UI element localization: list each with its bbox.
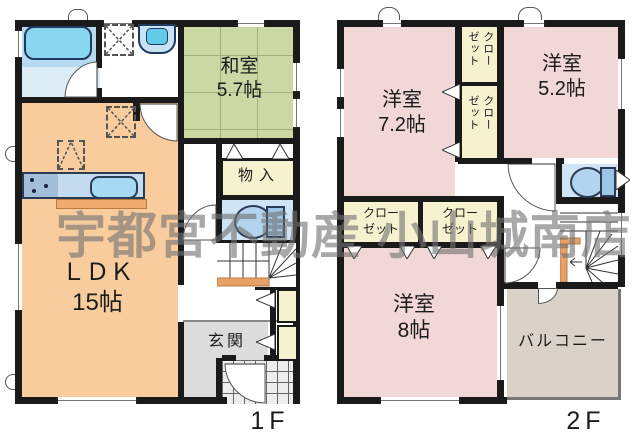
western52-name: 洋室	[512, 52, 612, 77]
kitchen-sink	[90, 176, 138, 199]
balcony-label: バルコニー	[512, 332, 614, 352]
window	[337, 108, 344, 138]
balcony-slider-window	[497, 305, 504, 381]
wall	[458, 158, 505, 164]
window	[380, 397, 460, 404]
wall	[178, 322, 184, 404]
window	[15, 243, 22, 311]
closet-text: ゼット	[423, 222, 497, 238]
wall	[178, 20, 184, 103]
wall	[497, 20, 504, 162]
door-arc-bathroom	[64, 60, 98, 98]
floor2-label: 2F	[556, 406, 616, 437]
western52-size: 5.2帖	[512, 77, 612, 102]
cupboard-space	[57, 140, 85, 170]
window	[237, 20, 265, 27]
wall	[556, 164, 562, 200]
wall	[342, 242, 502, 248]
closet-h1-label: クロー ゼット	[344, 206, 418, 237]
washitsu-name: 和室	[192, 55, 287, 79]
door-arc-entrance	[224, 363, 266, 404]
door-arc-ldk	[140, 104, 178, 142]
window	[382, 20, 402, 27]
closet-door-triangle	[400, 246, 415, 259]
closet-text: クロー	[480, 95, 494, 131]
closet-text: クロー	[423, 206, 497, 222]
washitsu-label: 和室 5.7帖	[192, 55, 287, 103]
monoire-label: 物入	[222, 167, 296, 186]
closet-text: ゼット	[465, 95, 479, 131]
kitchen-counter-edge	[56, 199, 147, 209]
ldk-name: ＬＤＫ	[45, 258, 150, 288]
shoe-cabinet-lower	[277, 325, 298, 361]
ldk-label: ＬＤＫ 15帖	[45, 258, 150, 318]
wall	[497, 196, 504, 248]
toilet-tank-1f	[266, 206, 285, 238]
shoe-cabinet-triangle	[256, 292, 275, 308]
shoe-cabinet-upper	[277, 289, 298, 323]
wall	[178, 103, 184, 285]
kitchen-stove	[24, 174, 58, 197]
window	[15, 30, 22, 58]
window	[293, 62, 300, 92]
western8-name: 洋室	[364, 292, 464, 318]
refrigerator-space	[106, 106, 136, 138]
closet-door-triangle	[481, 246, 496, 259]
floor1-label: 1F	[240, 406, 300, 437]
washbasin-bowl	[146, 28, 168, 45]
door-arc-toilet-1f	[183, 205, 216, 241]
bathtub	[24, 26, 92, 60]
western72-size: 7.2帖	[352, 113, 452, 138]
wall	[216, 358, 222, 404]
closet-door-triangle	[226, 144, 243, 159]
wall	[497, 379, 504, 404]
stairs-2f	[560, 204, 618, 282]
genkan-label: 玄関	[192, 332, 262, 352]
stairs-1f	[217, 243, 296, 287]
closet-door-triangle	[347, 246, 362, 259]
door-arc-hall-2f	[505, 248, 541, 284]
closet-text: クロー	[480, 31, 494, 67]
window	[618, 212, 625, 256]
wall	[216, 144, 222, 243]
closet-door-triangle	[272, 144, 289, 159]
wall	[556, 282, 618, 289]
closet-text: ゼット	[344, 222, 418, 238]
closet-door-triangle	[442, 142, 460, 158]
washitsu-size: 5.7帖	[192, 79, 287, 103]
western8-label: 洋室 8帖	[364, 292, 464, 345]
window	[618, 58, 625, 110]
closet-text: ゼット	[465, 31, 479, 67]
closet-h2-label: クロー ゼット	[423, 206, 497, 237]
western8-size: 8帖	[364, 318, 464, 344]
wall	[15, 97, 183, 103]
western52-label: 洋室 5.2帖	[512, 52, 612, 102]
closet-text: クロー	[344, 206, 418, 222]
floorplan-canvas: 和室 5.7帖 ＬＤＫ 15帖 物入 玄関 1F	[0, 0, 640, 442]
ldk-size: 15帖	[45, 288, 150, 318]
washing-machine	[104, 24, 134, 56]
wall	[222, 196, 296, 200]
closet-v2-label: クロー ゼット	[462, 95, 497, 131]
wall	[15, 20, 22, 404]
closet-door-triangle	[427, 246, 442, 259]
western72-name: 洋室	[352, 88, 452, 113]
window	[523, 20, 545, 27]
wall	[337, 20, 625, 27]
toilet-door-triangle	[616, 170, 630, 190]
wall	[222, 355, 236, 361]
door-arc-western-52	[508, 164, 556, 212]
closet-v1-label: クロー ゼット	[462, 31, 497, 67]
window	[293, 98, 300, 128]
wall	[497, 248, 504, 305]
western72-label: 洋室 7.2帖	[352, 88, 452, 138]
room-ldk	[22, 103, 178, 397]
wall	[458, 82, 498, 86]
window	[57, 397, 137, 404]
window	[337, 68, 344, 98]
toilet-tank-2f	[600, 167, 616, 197]
wall	[556, 197, 618, 204]
